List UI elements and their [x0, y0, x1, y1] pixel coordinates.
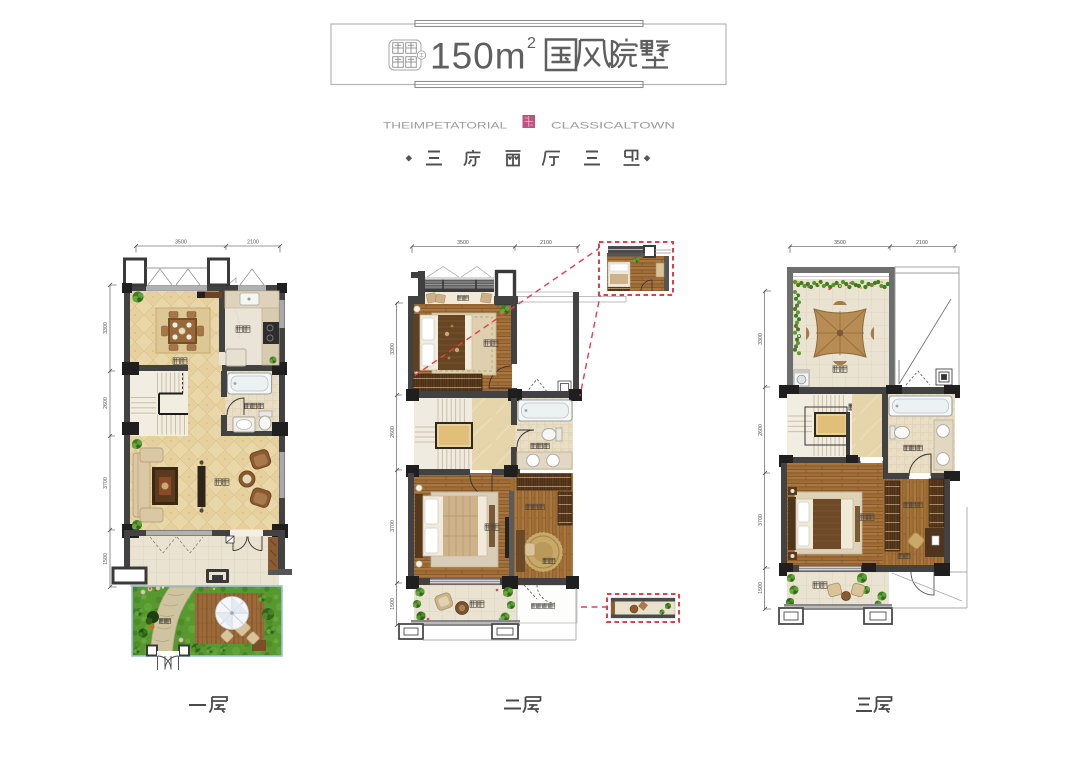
svg-text:1500: 1500	[390, 598, 396, 610]
svg-text:1500: 1500	[103, 553, 109, 565]
svg-text:THEIMPETATORIAL: THEIMPETATORIAL	[383, 121, 507, 131]
svg-text:3500: 3500	[175, 240, 187, 246]
svg-text:3300: 3300	[758, 333, 764, 345]
svg-text:3700: 3700	[390, 520, 396, 532]
svg-text:2100: 2100	[916, 240, 928, 246]
svg-text:2: 2	[527, 35, 536, 52]
svg-text:3500: 3500	[834, 240, 846, 246]
svg-text:3700: 3700	[758, 514, 764, 526]
svg-text:3300: 3300	[103, 322, 109, 334]
svg-text:2100: 2100	[247, 240, 259, 246]
svg-text:2600: 2600	[390, 426, 396, 438]
svg-text:3500: 3500	[457, 240, 469, 246]
svg-text:3700: 3700	[103, 477, 109, 489]
svg-text:2100: 2100	[540, 240, 552, 246]
svg-text:2600: 2600	[758, 424, 764, 436]
svg-text:CLASSICALTOWN: CLASSICALTOWN	[551, 121, 675, 131]
svg-text:2600: 2600	[103, 397, 109, 409]
svg-text:3300: 3300	[390, 343, 396, 355]
svg-text:150m: 150m	[430, 36, 527, 77]
svg-text:1500: 1500	[758, 582, 764, 594]
